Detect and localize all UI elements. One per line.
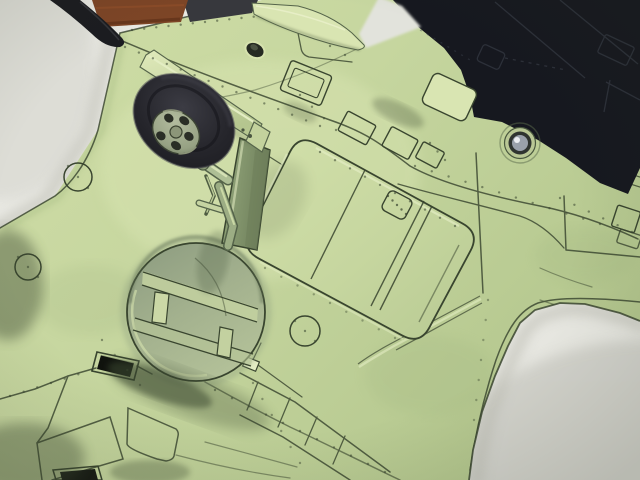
model-aircraft-photo xyxy=(0,0,640,480)
photo-vignette xyxy=(0,0,640,480)
photo-canvas xyxy=(0,0,640,480)
